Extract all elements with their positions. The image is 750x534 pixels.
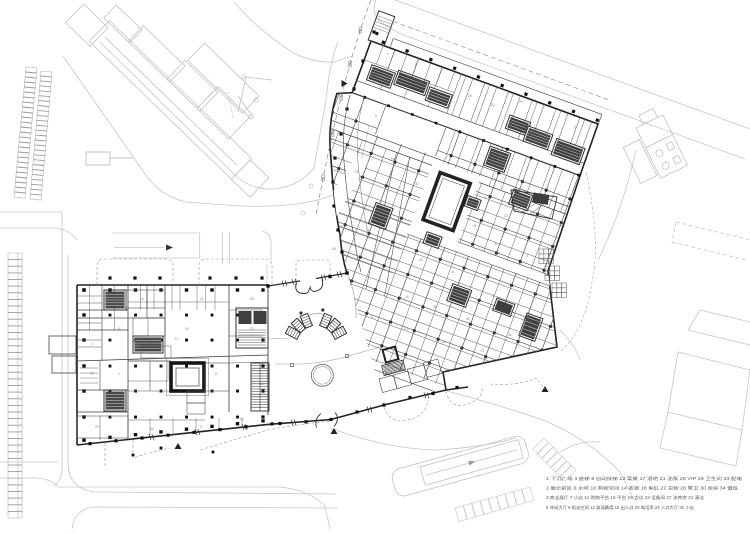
- svg-text:15: 15: [185, 327, 189, 331]
- svg-text:14: 14: [140, 297, 144, 301]
- svg-text:1: 1: [387, 52, 389, 56]
- svg-text:23: 23: [355, 170, 359, 174]
- svg-text:19: 19: [405, 295, 409, 299]
- svg-text:10: 10: [240, 417, 244, 421]
- svg-text:16: 16: [391, 157, 395, 161]
- svg-text:34: 34: [508, 333, 512, 337]
- svg-text:1 下沉广场 4 座梯 9 自动扶梯 13 菜摊 1: 1 下沉广场 4 座梯 9 自动扶梯 13 菜摊 17 酒吧 21 油泵 25 …: [546, 475, 743, 482]
- svg-text:21: 21: [200, 297, 204, 301]
- svg-text:12: 12: [491, 294, 495, 298]
- svg-text:13: 13: [404, 327, 408, 331]
- svg-text:26: 26: [433, 305, 437, 309]
- svg-text:9: 9: [375, 114, 377, 118]
- svg-text:5 休闲大厅 8 相谈空间 12 玻璃幕墙 16 出入: 5 休闲大厅 8 相谈空间 12 玻璃幕墙 16 出入口 20 电话亭 24 入…: [546, 504, 694, 511]
- svg-text:7: 7: [92, 297, 94, 301]
- svg-text:8: 8: [415, 63, 417, 67]
- svg-text:3: 3: [484, 196, 486, 200]
- svg-text:29: 29: [90, 372, 94, 376]
- svg-text:3: 3: [200, 425, 202, 429]
- svg-text:22: 22: [491, 103, 495, 107]
- svg-text:32: 32: [419, 258, 423, 262]
- svg-text:4: 4: [526, 254, 528, 258]
- svg-text:2 展示前区 6 水吧 10 购物空间 14 收银: 2 展示前区 6 水吧 10 购物空间 14 收银 18 鱼缸 22 货物 26…: [546, 485, 738, 492]
- svg-text:31: 31: [494, 242, 498, 246]
- svg-text:10: 10: [504, 214, 508, 218]
- svg-text:20: 20: [442, 340, 446, 344]
- svg-text:1: 1: [92, 342, 94, 346]
- svg-text:15: 15: [468, 94, 472, 98]
- svg-text:16: 16: [260, 382, 264, 386]
- svg-text:22: 22: [250, 327, 254, 331]
- svg-text:17: 17: [531, 213, 535, 217]
- svg-text:2: 2: [118, 372, 120, 376]
- svg-text:23: 23: [95, 425, 99, 429]
- svg-text:6: 6: [371, 315, 373, 319]
- svg-text:30: 30: [150, 427, 154, 431]
- svg-text:8: 8: [118, 327, 120, 331]
- svg-text:30: 30: [415, 182, 419, 186]
- svg-text:17: 17: [175, 337, 179, 341]
- svg-text:28: 28: [250, 297, 254, 301]
- svg-text:27: 27: [481, 349, 485, 353]
- svg-text:29: 29: [519, 100, 523, 104]
- svg-text:9: 9: [215, 372, 217, 376]
- svg-text:5: 5: [452, 270, 454, 274]
- svg-text:11: 11: [366, 228, 370, 232]
- svg-text:25: 25: [387, 257, 391, 261]
- svg-text:18: 18: [332, 247, 336, 251]
- svg-text:33: 33: [466, 317, 470, 321]
- svg-text:24: 24: [473, 224, 477, 228]
- svg-text:3 商业展厅 7 小店 11 购物平台 15 平台: 3 商业展厅 7 小店 11 购物平台 15 平台 19 会议 23 设备间 2…: [546, 494, 704, 501]
- svg-text:2: 2: [574, 125, 576, 129]
